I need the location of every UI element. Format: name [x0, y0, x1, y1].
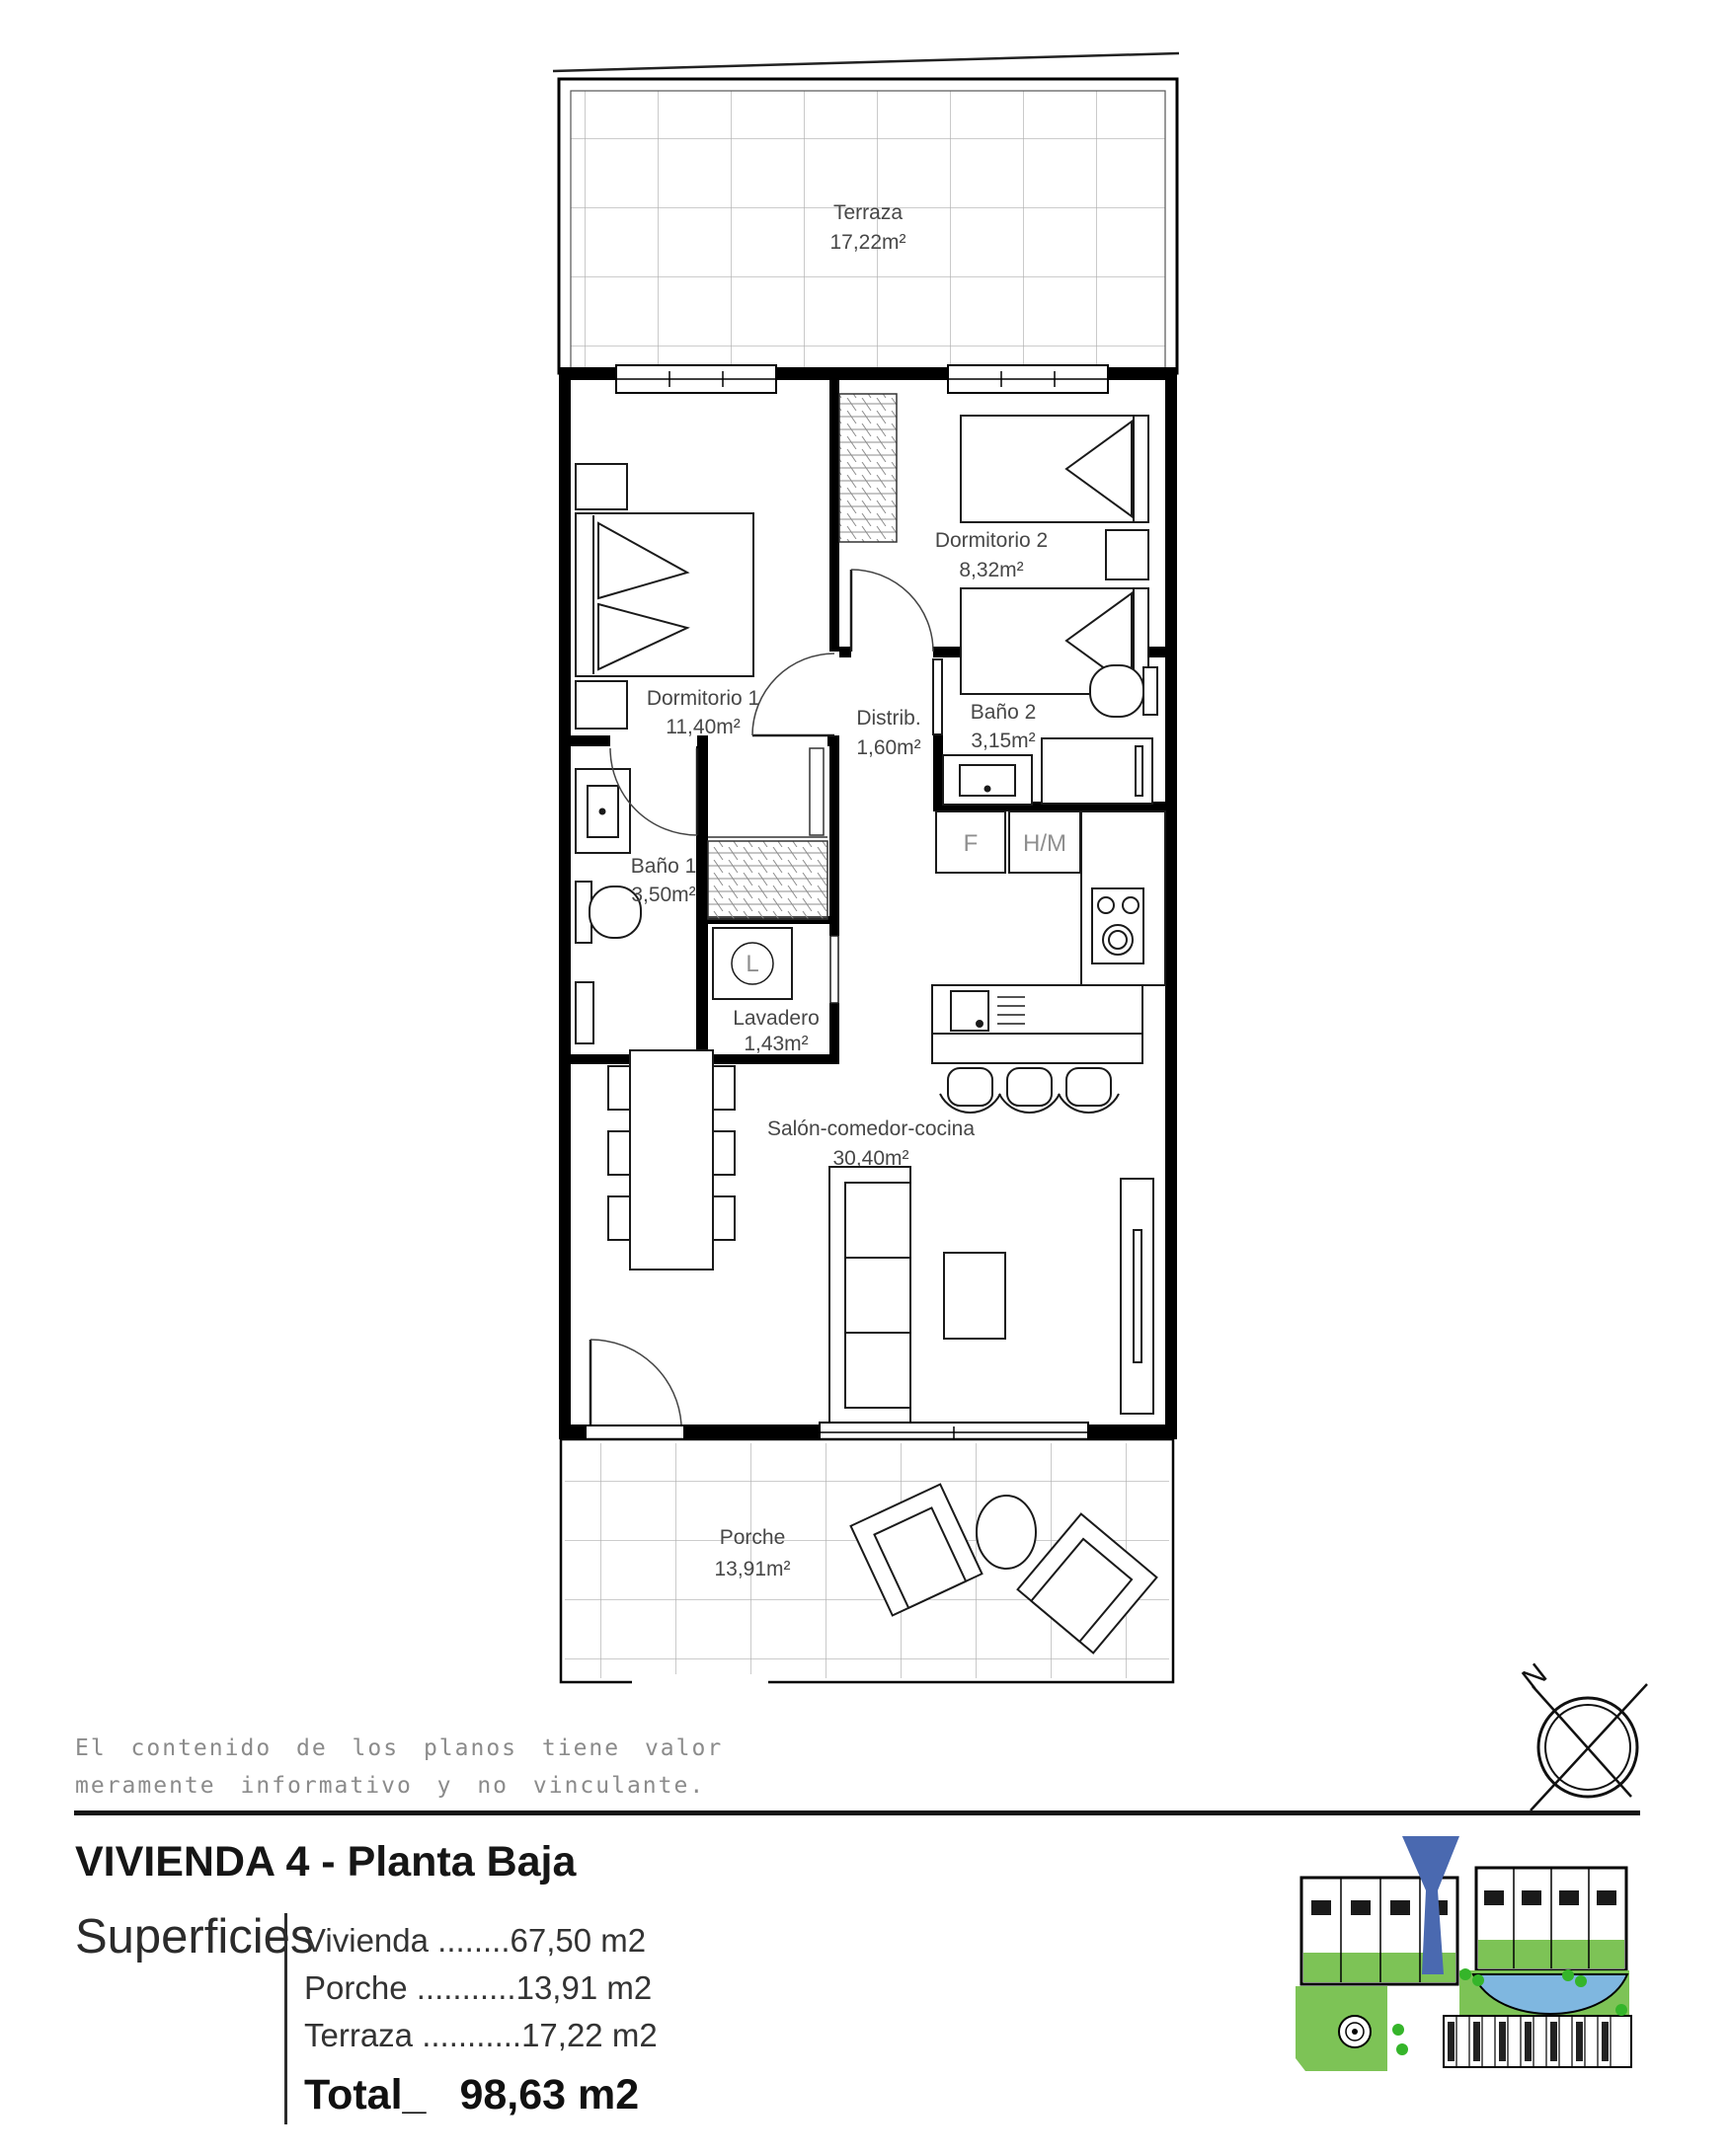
surfaces-total: Total_98,63 m2: [304, 2071, 658, 2119]
dormitorio-2-furniture: [961, 416, 1148, 694]
tv-unit: [1121, 1179, 1153, 1414]
dormitorio-1-door: [752, 654, 834, 735]
single-bed: [961, 416, 1148, 522]
room-area: 1,60m²: [856, 736, 920, 759]
tall-unit-letter: H/M: [1023, 830, 1066, 857]
room-label: Baño 1: [631, 855, 697, 878]
disclaimer-line-2: meramente informativo y no vinculante.: [75, 1767, 723, 1805]
north-compass: N: [1516, 1657, 1647, 1810]
nightstand: [1106, 530, 1148, 579]
room-label: Terraza: [833, 201, 903, 224]
room-label: Dormitorio 1: [647, 687, 759, 710]
lavadero-room: L: [713, 928, 838, 1003]
room-label: Dormitorio 2: [935, 529, 1048, 552]
room-label: Baño 2: [971, 701, 1037, 724]
divider-rule: [74, 1810, 1640, 1815]
fridge-letter: F: [964, 830, 979, 857]
room-area: 3,50m²: [631, 884, 695, 906]
room-label: Lavadero: [733, 1007, 820, 1030]
room-label: Salón-comedor-cocina: [767, 1117, 975, 1140]
dining-table: [630, 1050, 713, 1270]
entrance-opening: [587, 1426, 683, 1438]
room-area: 17,22m²: [829, 231, 905, 254]
coffee-table: [944, 1253, 1005, 1339]
site-plan-thumbnail: [1296, 1836, 1631, 2071]
page-title: VIVIENDA 4 - Planta Baja: [75, 1838, 576, 1886]
dining-set: [608, 1050, 735, 1270]
nightstand: [576, 464, 627, 509]
disclaimer-line-1: El contenido de los planos tiene valor: [75, 1730, 723, 1767]
nightstand: [576, 681, 627, 729]
window-dormitorio-2: [948, 365, 1108, 393]
sofa: [829, 1167, 910, 1424]
wardrobe: [839, 394, 897, 542]
bath-cabinet: [576, 982, 593, 1043]
window-dormitorio-1: [616, 365, 776, 393]
washer-letter: L: [746, 951, 758, 977]
room-area: 3,15m²: [971, 730, 1035, 752]
dormitorio-1-wardrobe: [708, 748, 827, 919]
toilet: [1090, 665, 1143, 717]
double-bed: [576, 513, 753, 676]
room-area: 8,32m²: [959, 559, 1023, 581]
surfaces-divider: [284, 1913, 287, 2124]
room-label: Distrib.: [856, 707, 920, 730]
surfaces-heading: Superficies: [75, 1909, 314, 1964]
floorplan-page: Terraza 17,22m²: [0, 0, 1730, 2156]
entrance-door: [590, 1340, 681, 1424]
surface-row-terraza: Terraza ...........17,22 m2: [304, 2012, 658, 2059]
floorplan-drawing: Terraza 17,22m²: [0, 0, 1730, 2156]
lavadero-door: [830, 936, 838, 1003]
room-area: 13,91m²: [714, 1558, 790, 1580]
porch-table: [977, 1496, 1036, 1569]
bar-stools: [940, 1068, 1119, 1113]
terraza-room: Terraza 17,22m²: [553, 53, 1179, 373]
room-area: 1,43m²: [744, 1033, 808, 1055]
site-roundabout: [1339, 2016, 1371, 2047]
room-label: Porche: [720, 1526, 786, 1549]
site-parking: [1444, 2016, 1631, 2067]
bano-1-fixtures: [576, 769, 641, 1043]
breakfast-bar: [932, 1034, 1142, 1063]
site-boundary-line: [553, 53, 1179, 71]
toilet-cistern: [1143, 667, 1157, 715]
room-area: 11,40m²: [666, 716, 740, 738]
compass-needle: [1533, 1686, 1631, 1797]
porche-opening: [632, 1674, 768, 1686]
dormitorio-2-door: [851, 570, 933, 652]
terraza-tiles: [571, 91, 1165, 369]
bathroom-door: [933, 659, 942, 734]
surface-row-porche: Porche ...........13,91 m2: [304, 1964, 658, 2012]
porche-room: Porche 13,91m²: [561, 1439, 1173, 1686]
disclaimer-text: El contenido de los planos tiene valor m…: [75, 1730, 723, 1805]
north-label: N: [1516, 1657, 1552, 1696]
surface-row-vivienda: Vivienda ........67,50 m2: [304, 1917, 658, 1964]
